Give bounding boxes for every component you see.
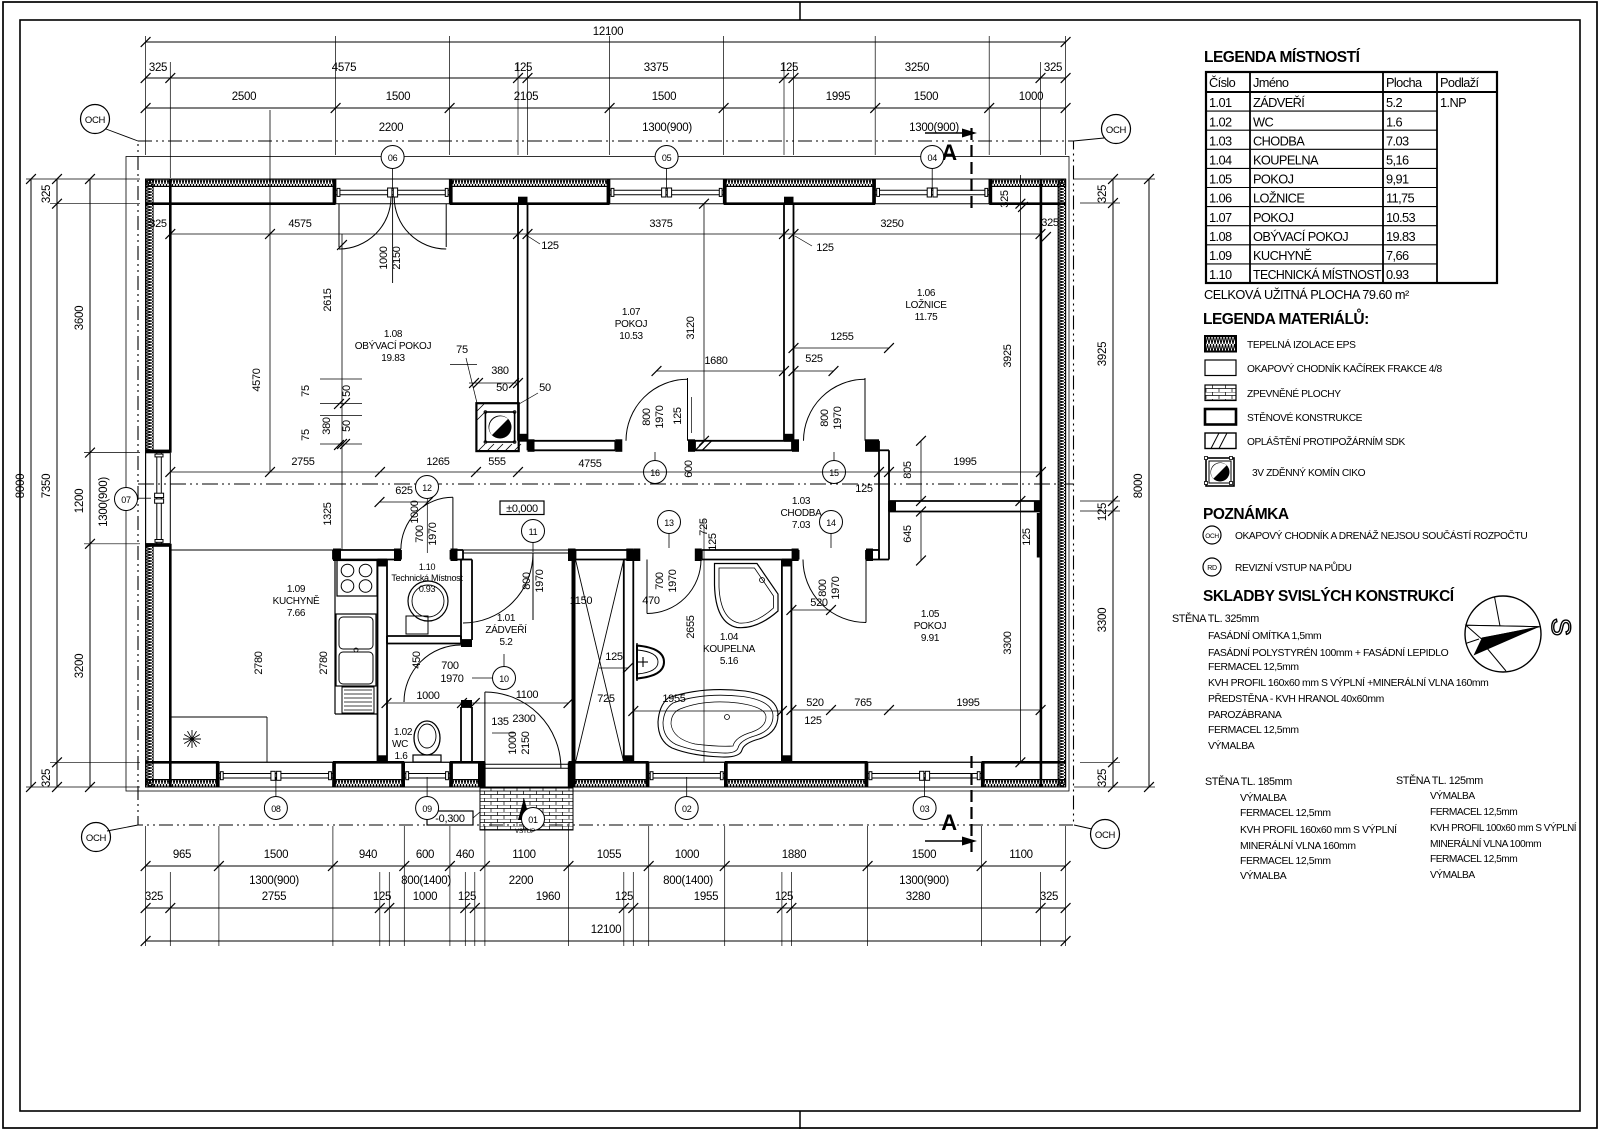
svg-text:CHODBA: CHODBA [781, 508, 823, 519]
svg-text:9.91: 9.91 [921, 633, 940, 644]
svg-text:MINERÁLNÍ VLNA 160mm: MINERÁLNÍ VLNA 160mm [1240, 839, 1356, 852]
svg-text:VSTUP: VSTUP [515, 828, 535, 835]
svg-text:FASÁDNÍ OMÍTKA 1,5mm: FASÁDNÍ OMÍTKA 1,5mm [1208, 629, 1321, 642]
svg-text:VÝMALBA: VÝMALBA [1208, 739, 1255, 752]
svg-text:FASÁDNÍ POLYSTYRÉN 100mm + FAS: FASÁDNÍ POLYSTYRÉN 100mm + FASÁDNÍ LEPID… [1208, 646, 1449, 659]
svg-text:02: 02 [682, 804, 692, 814]
svg-text:800: 800 [819, 409, 831, 427]
svg-text:50: 50 [341, 385, 353, 397]
svg-text:1.05: 1.05 [1209, 172, 1232, 187]
svg-text:TECHNICKÁ MÍSTNOST: TECHNICKÁ MÍSTNOST [1253, 267, 1382, 282]
svg-text:1500: 1500 [264, 849, 288, 861]
svg-text:1150: 1150 [570, 595, 593, 607]
svg-text:125: 125 [855, 483, 873, 495]
svg-text:LEGENDA MATERIÁLŮ:: LEGENDA MATERIÁLŮ: [1203, 309, 1369, 328]
svg-text:1.03: 1.03 [1209, 133, 1232, 148]
svg-text:5.16: 5.16 [720, 656, 739, 667]
svg-text:50: 50 [496, 382, 508, 394]
svg-text:1960: 1960 [536, 891, 560, 903]
svg-text:1970: 1970 [654, 405, 666, 428]
svg-text:8000: 8000 [15, 474, 27, 498]
svg-text:13: 13 [664, 518, 674, 528]
svg-text:19.83: 19.83 [381, 353, 405, 364]
svg-text:POKOJ: POKOJ [914, 621, 947, 632]
svg-text:LOŽNICE: LOŽNICE [1253, 191, 1304, 206]
svg-text:5.2: 5.2 [1386, 95, 1402, 110]
svg-text:1500: 1500 [912, 849, 936, 861]
svg-text:125: 125 [514, 62, 532, 74]
svg-text:1.05: 1.05 [921, 609, 940, 620]
svg-text:1.02: 1.02 [394, 727, 413, 738]
svg-text:STĚNA TL. 185mm: STĚNA TL. 185mm [1205, 775, 1292, 788]
svg-text:3925: 3925 [1002, 344, 1014, 367]
svg-text:VÝMALBA: VÝMALBA [1430, 868, 1475, 881]
svg-text:805: 805 [902, 461, 914, 479]
svg-text:3200: 3200 [74, 654, 86, 678]
svg-text:A: A [941, 810, 957, 835]
svg-text:4570: 4570 [251, 368, 263, 391]
svg-text:4755: 4755 [578, 458, 601, 470]
svg-text:600: 600 [683, 460, 695, 478]
svg-text:OCH: OCH [1095, 830, 1116, 841]
svg-text:3280: 3280 [906, 891, 930, 903]
svg-text:1970: 1970 [427, 522, 439, 545]
svg-text:325: 325 [41, 769, 53, 787]
svg-text:1000: 1000 [1019, 91, 1043, 103]
svg-text:10.53: 10.53 [619, 331, 643, 342]
svg-text:ZPEVNĚNÉ PLOCHY: ZPEVNĚNÉ PLOCHY [1247, 387, 1341, 400]
svg-text:9,91: 9,91 [1386, 172, 1409, 187]
svg-text:OBÝVACÍ POKOJ: OBÝVACÍ POKOJ [1253, 229, 1348, 244]
svg-text:REVIZNÍ VSTUP NA PŮDU: REVIZNÍ VSTUP NA PŮDU [1235, 561, 1352, 574]
svg-text:50: 50 [539, 382, 551, 394]
svg-text:1.04: 1.04 [720, 632, 739, 643]
svg-text:125: 125 [672, 407, 684, 425]
svg-text:CHODBA: CHODBA [1253, 133, 1305, 148]
svg-text:1.08: 1.08 [384, 329, 403, 340]
svg-text:KVH PROFIL 100x60 mm S VÝPLNÍ: KVH PROFIL 100x60 mm S VÝPLNÍ [1430, 821, 1577, 834]
svg-text:725: 725 [698, 518, 710, 536]
svg-text:FERMACEL 12,5mm: FERMACEL 12,5mm [1208, 725, 1299, 736]
svg-text:325: 325 [1040, 891, 1058, 903]
svg-text:8000: 8000 [1133, 474, 1145, 498]
svg-text:POKOJ: POKOJ [1253, 172, 1294, 187]
svg-text:12100: 12100 [593, 26, 623, 38]
svg-text:7.03: 7.03 [792, 520, 811, 531]
svg-text:3250: 3250 [905, 62, 929, 74]
svg-text:SKLADBY SVISLÝCH KONSTRUKCÍ: SKLADBY SVISLÝCH KONSTRUKCÍ [1203, 587, 1455, 605]
svg-text:7,66: 7,66 [1386, 248, 1409, 263]
svg-text:FERMACEL 12,5mm: FERMACEL 12,5mm [1240, 856, 1331, 867]
svg-text:470: 470 [642, 595, 660, 607]
svg-text:KOUPELNA: KOUPELNA [1253, 153, 1319, 168]
svg-text:1.09: 1.09 [1209, 248, 1232, 263]
svg-text:10: 10 [499, 674, 509, 684]
svg-text:325: 325 [145, 891, 163, 903]
svg-text:PŘEDSTĚNA - KVH HRANOL 40x60mm: PŘEDSTĚNA - KVH HRANOL 40x60mm [1208, 692, 1384, 705]
svg-text:0.93: 0.93 [1386, 267, 1409, 282]
svg-text:0.93: 0.93 [419, 584, 436, 594]
svg-text:1300(900): 1300(900) [98, 477, 110, 527]
svg-text:325: 325 [1097, 769, 1109, 787]
svg-text:OCH: OCH [1205, 533, 1219, 540]
svg-text:1.09: 1.09 [287, 584, 306, 595]
svg-text:OCH: OCH [85, 115, 106, 126]
svg-text:OBÝVACÍ POKOJ: OBÝVACÍ POKOJ [355, 339, 432, 352]
svg-text:1000: 1000 [378, 246, 390, 269]
svg-text:1265: 1265 [426, 456, 449, 468]
svg-text:1000: 1000 [675, 849, 699, 861]
svg-text:1325: 1325 [322, 502, 334, 525]
svg-text:325: 325 [149, 218, 167, 230]
svg-text:3925: 3925 [1097, 342, 1109, 366]
svg-text:11,75: 11,75 [1386, 191, 1415, 206]
svg-text:2300: 2300 [512, 713, 535, 725]
svg-text:7350: 7350 [41, 474, 53, 498]
svg-text:10.53: 10.53 [1386, 210, 1416, 225]
svg-text:ZÁDVEŘÍ: ZÁDVEŘÍ [485, 623, 527, 636]
svg-text:700: 700 [441, 660, 459, 672]
svg-text:KOUPELNA: KOUPELNA [703, 644, 756, 655]
svg-text:75: 75 [300, 385, 312, 397]
svg-text:1000: 1000 [413, 891, 437, 903]
svg-text:1000: 1000 [409, 500, 421, 523]
svg-text:1970: 1970 [440, 673, 463, 685]
svg-text:1000: 1000 [416, 690, 439, 702]
svg-text:STĚNA TL. 125mm: STĚNA TL. 125mm [1396, 774, 1483, 787]
svg-text:1255: 1255 [830, 331, 853, 343]
svg-text:645: 645 [902, 525, 914, 543]
svg-text:2655: 2655 [685, 615, 697, 638]
svg-text:1970: 1970 [830, 576, 842, 599]
svg-text:06: 06 [388, 153, 398, 163]
svg-text:1100: 1100 [516, 689, 539, 701]
svg-text:WC: WC [392, 739, 408, 750]
svg-text:125: 125 [775, 891, 793, 903]
svg-text:2150: 2150 [520, 731, 532, 754]
svg-text:725: 725 [597, 693, 615, 705]
svg-text:PAROZÁBRANA: PAROZÁBRANA [1208, 708, 1282, 721]
svg-text:01: 01 [528, 815, 538, 825]
svg-text:125: 125 [605, 651, 623, 663]
svg-text:FERMACEL 12,5mm: FERMACEL 12,5mm [1208, 662, 1299, 673]
svg-text:±0,000: ±0,000 [506, 503, 538, 515]
svg-text:765: 765 [854, 697, 872, 709]
svg-text:50: 50 [341, 420, 353, 432]
svg-text:325: 325 [149, 62, 167, 74]
svg-text:75: 75 [300, 429, 312, 441]
svg-text:125: 125 [541, 240, 559, 252]
svg-text:125: 125 [373, 891, 391, 903]
svg-text:800: 800 [521, 572, 533, 590]
svg-text:325: 325 [1041, 217, 1059, 229]
svg-text:1300(900): 1300(900) [249, 875, 299, 887]
svg-text:S: S [1546, 618, 1576, 636]
svg-text:125: 125 [816, 242, 834, 254]
svg-text:19.83: 19.83 [1386, 229, 1416, 244]
svg-text:3250: 3250 [880, 218, 903, 230]
svg-text:800: 800 [641, 408, 653, 426]
svg-text:135: 135 [491, 716, 509, 728]
svg-text:WC: WC [1253, 114, 1273, 129]
svg-text:1500: 1500 [386, 91, 410, 103]
svg-text:POZNÁMKA: POZNÁMKA [1203, 506, 1289, 523]
svg-text:Technická Místnost: Technická Místnost [391, 573, 463, 583]
svg-text:1.01: 1.01 [497, 613, 516, 624]
svg-text:-0,300: -0,300 [435, 813, 465, 825]
svg-text:KVH PROFIL 160x60 mm S VÝPLNÍ: KVH PROFIL 160x60 mm S VÝPLNÍ [1240, 823, 1397, 836]
svg-text:325: 325 [1044, 62, 1062, 74]
svg-text:1200: 1200 [74, 489, 86, 513]
svg-text:1500: 1500 [652, 91, 676, 103]
svg-text:125: 125 [780, 62, 798, 74]
svg-text:12100: 12100 [591, 924, 621, 936]
svg-text:3V ZDĚNNÝ KOMÍN CIKO: 3V ZDĚNNÝ KOMÍN CIKO [1252, 466, 1366, 479]
svg-text:05: 05 [662, 153, 672, 163]
svg-text:125: 125 [1097, 503, 1109, 521]
svg-text:450: 450 [411, 651, 423, 669]
svg-text:TEPELNÁ IZOLACE EPS: TEPELNÁ IZOLACE EPS [1247, 338, 1356, 351]
svg-text:1.02: 1.02 [1209, 114, 1232, 129]
svg-text:2780: 2780 [318, 651, 330, 674]
svg-text:KVH PROFIL 160x60 mm S VÝPLNÍ: KVH PROFIL 160x60 mm S VÝPLNÍ +MINERÁLNÍ… [1208, 676, 1488, 689]
svg-text:VÝMALBA: VÝMALBA [1240, 869, 1287, 882]
svg-text:600: 600 [416, 849, 434, 861]
svg-text:1.6: 1.6 [1386, 114, 1402, 129]
svg-text:07: 07 [121, 495, 131, 505]
svg-text:1.10: 1.10 [1209, 267, 1232, 282]
svg-text:4575: 4575 [288, 218, 311, 230]
svg-text:380: 380 [491, 365, 509, 377]
svg-text:1.08: 1.08 [1209, 229, 1232, 244]
svg-text:1300(900): 1300(900) [642, 122, 692, 134]
svg-text:125: 125 [1021, 528, 1033, 546]
svg-text:08: 08 [271, 804, 281, 814]
svg-text:2755: 2755 [262, 891, 286, 903]
svg-text:1955: 1955 [662, 693, 685, 705]
svg-text:1055: 1055 [597, 849, 621, 861]
svg-text:1.01: 1.01 [1209, 95, 1232, 110]
svg-text:11.75: 11.75 [915, 312, 939, 323]
svg-text:1995: 1995 [826, 91, 850, 103]
svg-text:2105: 2105 [514, 91, 538, 103]
svg-text:LEGENDA MÍSTNOSTÍ: LEGENDA MÍSTNOSTÍ [1204, 49, 1361, 66]
svg-text:Jméno: Jméno [1253, 75, 1289, 90]
svg-text:5.2: 5.2 [499, 637, 513, 648]
svg-text:325: 325 [41, 185, 53, 203]
svg-text:1100: 1100 [1009, 849, 1033, 861]
svg-text:1100: 1100 [512, 849, 536, 861]
svg-text:1500: 1500 [914, 91, 938, 103]
svg-text:1.07: 1.07 [622, 307, 641, 318]
svg-text:OKAPOVÝ CHODNÍK KAČÍREK FRAKCE: OKAPOVÝ CHODNÍK KAČÍREK FRAKCE 4/8 [1247, 362, 1442, 375]
svg-text:1970: 1970 [832, 406, 844, 429]
svg-text:1955: 1955 [694, 891, 718, 903]
svg-text:3120: 3120 [685, 316, 697, 339]
svg-text:2755: 2755 [291, 456, 314, 468]
svg-text:460: 460 [456, 849, 474, 861]
svg-text:Podlaží: Podlaží [1440, 75, 1480, 90]
svg-text:520: 520 [810, 597, 828, 609]
svg-text:VÝMALBA: VÝMALBA [1240, 791, 1287, 804]
svg-text:RD: RD [1207, 565, 1217, 572]
svg-text:Plocha: Plocha [1386, 75, 1423, 90]
svg-text:125: 125 [804, 715, 822, 727]
svg-text:325: 325 [1097, 185, 1109, 203]
svg-text:VÝMALBA: VÝMALBA [1430, 789, 1475, 802]
svg-text:FERMACEL 12,5mm: FERMACEL 12,5mm [1430, 854, 1517, 865]
svg-text:11: 11 [529, 527, 538, 537]
svg-text:625: 625 [395, 485, 413, 497]
svg-text:03: 03 [920, 804, 930, 814]
svg-text:A: A [941, 140, 957, 165]
svg-text:OCH: OCH [1106, 125, 1127, 136]
svg-text:800(1400): 800(1400) [663, 875, 713, 887]
svg-text:KUCHYNĚ: KUCHYNĚ [1253, 248, 1311, 263]
svg-text:1.NP: 1.NP [1440, 95, 1466, 110]
svg-text:3300: 3300 [1002, 631, 1014, 654]
svg-text:12: 12 [422, 483, 432, 493]
svg-text:MINERÁLNÍ VLNA 100mm: MINERÁLNÍ VLNA 100mm [1430, 837, 1541, 850]
svg-text:ZÁDVEŘÍ: ZÁDVEŘÍ [1253, 95, 1305, 110]
svg-text:KUCHYNĚ: KUCHYNĚ [273, 594, 320, 607]
svg-text:3375: 3375 [649, 218, 672, 230]
svg-text:OPLÁŠTĚNÍ PROTIPOŽÁRNÍM SDK: OPLÁŠTĚNÍ PROTIPOŽÁRNÍM SDK [1247, 435, 1405, 448]
svg-text:1880: 1880 [782, 849, 806, 861]
svg-text:700: 700 [414, 525, 426, 543]
svg-text:CELKOVÁ UŽITNÁ PLOCHA 79.60: CELKOVÁ UŽITNÁ PLOCHA 79.60 m² [1204, 287, 1410, 302]
svg-text:STĚNOVÉ KONSTRUKCE: STĚNOVÉ KONSTRUKCE [1247, 411, 1363, 424]
svg-text:325: 325 [999, 190, 1011, 208]
svg-text:1.03: 1.03 [792, 496, 811, 507]
svg-text:965: 965 [173, 849, 191, 861]
svg-text:75: 75 [456, 344, 468, 356]
svg-text:FERMACEL 12,5mm: FERMACEL 12,5mm [1240, 808, 1331, 819]
svg-text:1995: 1995 [956, 697, 979, 709]
svg-text:1995: 1995 [953, 456, 976, 468]
svg-text:125: 125 [707, 533, 719, 551]
svg-text:2780: 2780 [253, 651, 265, 674]
svg-text:1970: 1970 [534, 569, 546, 592]
svg-text:2200: 2200 [379, 122, 403, 134]
svg-text:1.07: 1.07 [1209, 210, 1232, 225]
svg-text:16: 16 [650, 468, 660, 478]
svg-text:3375: 3375 [644, 62, 668, 74]
svg-text:7.03: 7.03 [1386, 133, 1409, 148]
svg-text:POKOJ: POKOJ [1253, 210, 1294, 225]
svg-text:15: 15 [829, 468, 839, 478]
svg-text:FERMACEL 12,5mm: FERMACEL 12,5mm [1430, 807, 1517, 818]
svg-text:555: 555 [488, 456, 506, 468]
svg-text:525: 525 [805, 353, 823, 365]
svg-text:1970: 1970 [667, 569, 679, 592]
svg-text:1.06: 1.06 [917, 288, 936, 299]
svg-text:7.66: 7.66 [287, 608, 306, 619]
svg-text:LOŽNICE: LOŽNICE [905, 298, 947, 311]
svg-text:2615: 2615 [322, 288, 334, 311]
svg-text:STĚNA TL. 325mm: STĚNA TL. 325mm [1172, 612, 1259, 625]
svg-text:380: 380 [321, 417, 333, 435]
svg-text:1300(900): 1300(900) [899, 875, 949, 887]
svg-text:3300: 3300 [1097, 608, 1109, 632]
svg-text:04: 04 [927, 153, 937, 163]
svg-text:800(1400): 800(1400) [401, 875, 451, 887]
svg-text:1.04: 1.04 [1209, 153, 1232, 168]
svg-text:125: 125 [458, 891, 476, 903]
svg-text:1.6: 1.6 [394, 751, 408, 762]
svg-text:2150: 2150 [391, 246, 403, 269]
svg-text:OKAPOVÝ CHODNÍK A DRENÁŽ NEJSO: OKAPOVÝ CHODNÍK A DRENÁŽ NEJSOU SOUČÁSTÍ… [1235, 529, 1527, 542]
svg-text:1000: 1000 [507, 731, 519, 754]
svg-text:Číslo: Číslo [1209, 75, 1236, 90]
svg-text:14: 14 [826, 518, 836, 528]
svg-text:800: 800 [817, 579, 829, 597]
svg-text:520: 520 [806, 697, 824, 709]
svg-text:940: 940 [359, 849, 377, 861]
svg-text:1.10: 1.10 [419, 562, 436, 572]
svg-text:OCH: OCH [86, 833, 107, 844]
svg-text:700: 700 [654, 572, 666, 590]
svg-text:1.06: 1.06 [1209, 191, 1232, 206]
svg-text:3600: 3600 [74, 306, 86, 330]
svg-text:POKOJ: POKOJ [615, 319, 648, 330]
svg-text:2500: 2500 [232, 91, 256, 103]
svg-text:5,16: 5,16 [1386, 153, 1409, 168]
svg-text:1680: 1680 [704, 355, 727, 367]
svg-text:2200: 2200 [509, 875, 533, 887]
svg-text:09: 09 [422, 804, 432, 814]
